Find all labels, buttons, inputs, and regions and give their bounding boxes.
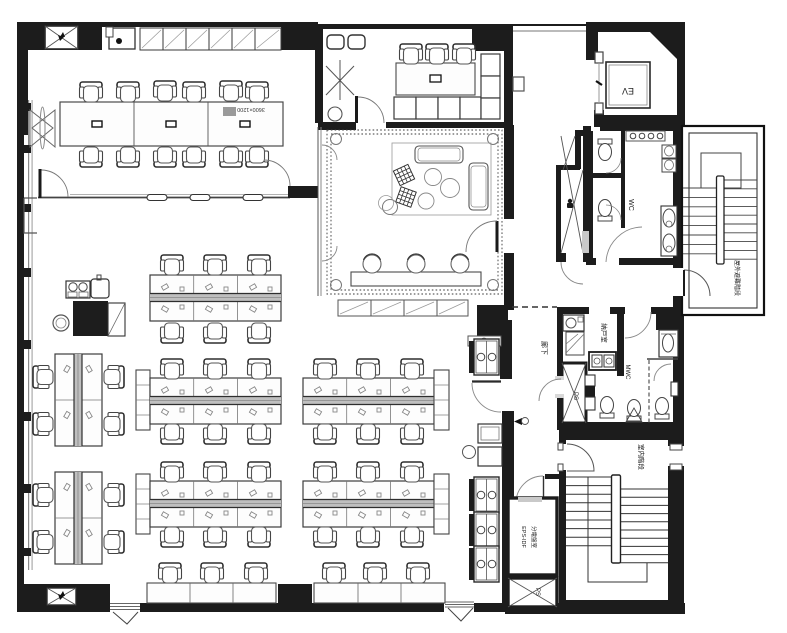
svg-text:3600×1200: 3600×1200 [237,106,265,112]
svg-text:EV: EV [622,86,634,96]
svg-text:PS: PS [534,588,540,596]
svg-text:EPS-IDF: EPS-IDF [520,526,526,548]
svg-text:分電盤室: 分電盤室 [530,526,538,549]
svg-text:MWC: MWC [624,365,630,381]
svg-text:WC: WC [627,199,634,211]
svg-text:廊下: 廊下 [540,341,549,355]
svg-text:納戸室: 納戸室 [600,323,609,343]
svg-text:屋外避難階段: 屋外避難階段 [733,260,741,296]
svg-text:PS: PS [572,392,578,400]
svg-text:室内階段: 室内階段 [637,444,646,471]
